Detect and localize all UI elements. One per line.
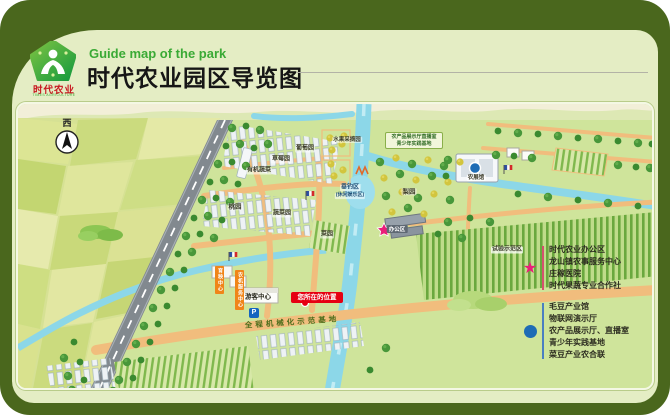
label-grape-garden: 葡萄园: [295, 146, 315, 153]
brand-name-en: TIMES AGRICULTURE: [24, 93, 84, 97]
legend-item: 龙山镇农事服务中心: [549, 256, 621, 268]
label-youth-practice-base: 青少年实践基地: [386, 141, 442, 148]
guide-map-page: 时代农业 TIMES AGRICULTURE Guide map of the …: [0, 0, 670, 415]
flag-icon: [306, 191, 314, 200]
label-vegetable-plot: 蔬菜园: [272, 211, 292, 218]
blue-circle-marker-icon: [470, 163, 481, 174]
legend-item: 时代果蔬专业合作社: [549, 280, 621, 292]
legend-item: 庄稼医院: [549, 268, 621, 280]
legend-circle-group: 毛豆产业馆 物联网演示厅 农产品展示厅、直播室 青少年实践基地 菜豆产业农合联: [518, 301, 654, 361]
legend-star-separator: [542, 246, 544, 290]
you-are-here-badge: 您所在的位置: [291, 292, 343, 303]
legend-item: 青少年实践基地: [549, 337, 629, 349]
label-fishing-area: 垂钓区: [340, 185, 360, 192]
label-pear-garden: 梨园: [402, 188, 417, 195]
label-peach-garden: 桃园: [228, 203, 243, 210]
label-display-room: 农产品展示厅直播室: [386, 134, 442, 141]
map-legend: ★ 时代农业办公区 龙山镇农事服务中心 庄稼医院 时代果蔬专业合作社 毛豆产业馆…: [518, 244, 654, 370]
label-organic-vegetables: 有机蔬菜: [246, 168, 272, 175]
label-visitor-center: 游客中心: [244, 293, 272, 300]
map-title: 时代农业园区导览图: [87, 59, 303, 93]
header-divider: [296, 72, 648, 73]
legend-item: 物联网演示厅: [549, 313, 629, 325]
legend-star-icon: ★: [523, 258, 537, 278]
legend-item: 毛豆产业馆: [549, 301, 629, 313]
parking-icon: P: [249, 308, 259, 318]
river-branch: [362, 154, 654, 206]
label-vegetable-garden: 菜园: [320, 232, 334, 239]
label-leisure-area: (休闲娱乐区): [335, 193, 365, 199]
display-room-label-box: 农产品展示厅直播室 青少年实践基地: [385, 132, 443, 149]
label-strawberry-garden: 草莓园: [271, 157, 291, 164]
legend-item: 菜豆产业农合联: [549, 349, 629, 361]
legend-circle-separator: [542, 303, 544, 359]
compass-icon: [56, 131, 78, 153]
legend-item: 农产品展示厅、直播室: [549, 325, 629, 337]
sign-machinery-center: 农机服务中心: [235, 270, 244, 310]
compass-west-label: 西: [61, 118, 72, 128]
brand-logo-icon: [30, 41, 76, 81]
park-map: 西 水果采摘园 葡萄园 草莓园 有机蔬菜 桃园 垂钓区 (休闲娱乐区) 蔬菜园 …: [16, 102, 654, 390]
label-office-area: 办公区: [387, 225, 408, 233]
sign-seedling-center: 育秧中心: [215, 266, 224, 294]
flag-icon: [504, 165, 512, 174]
label-fruit-picking-garden: 水果采摘园: [332, 137, 362, 143]
label-agri-exhibition-hall: 农展馆: [467, 175, 486, 181]
legend-item: 时代农业办公区: [549, 244, 621, 256]
legend-circle-icon: [524, 325, 537, 338]
legend-star-group: ★ 时代农业办公区 龙山镇农事服务中心 庄稼医院 时代果蔬专业合作社: [518, 244, 654, 292]
